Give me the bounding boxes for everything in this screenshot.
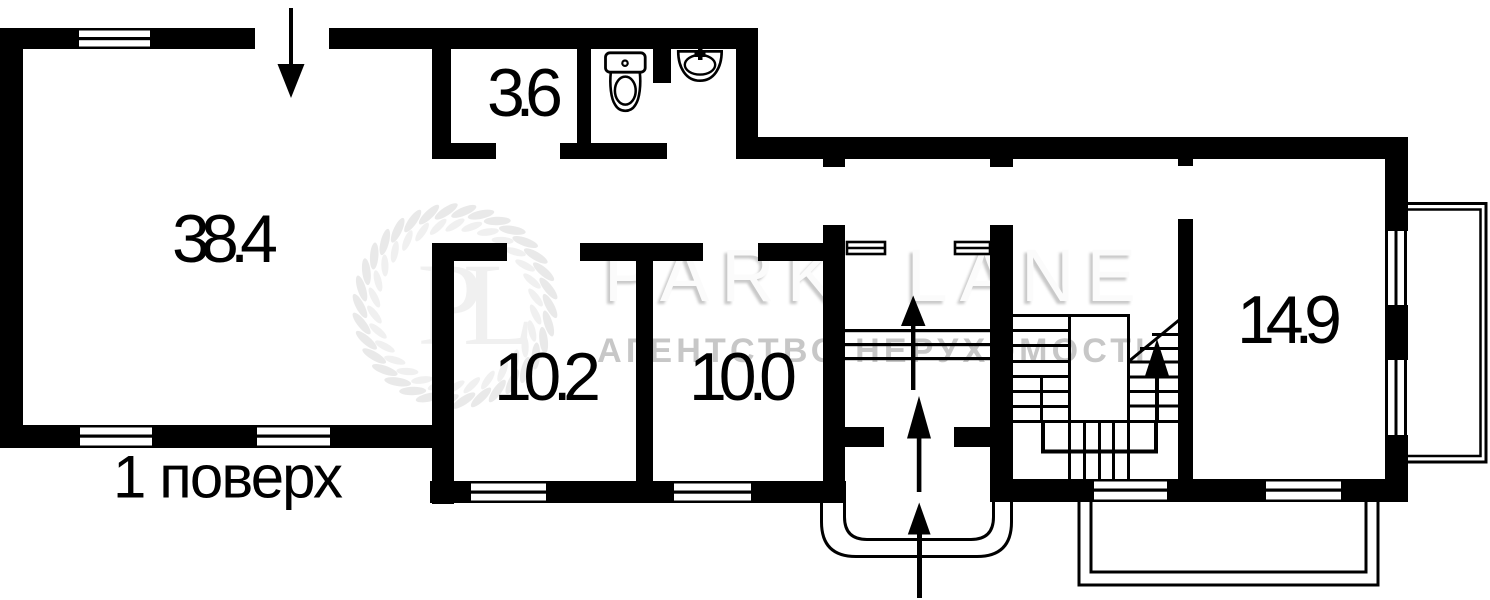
svg-text:АГЕНТСТВО НЕРУХОМОСТІ: АГЕНТСТВО НЕРУХОМОСТІ	[597, 332, 1149, 370]
svg-text:3.6: 3.6	[487, 55, 563, 131]
svg-text:1 поверх: 1 поверх	[113, 444, 343, 511]
svg-text:38.4: 38.4	[172, 201, 278, 277]
svg-text:10.0: 10.0	[689, 339, 797, 415]
svg-text:14.9: 14.9	[1237, 282, 1342, 358]
svg-text:10.2: 10.2	[494, 339, 601, 415]
